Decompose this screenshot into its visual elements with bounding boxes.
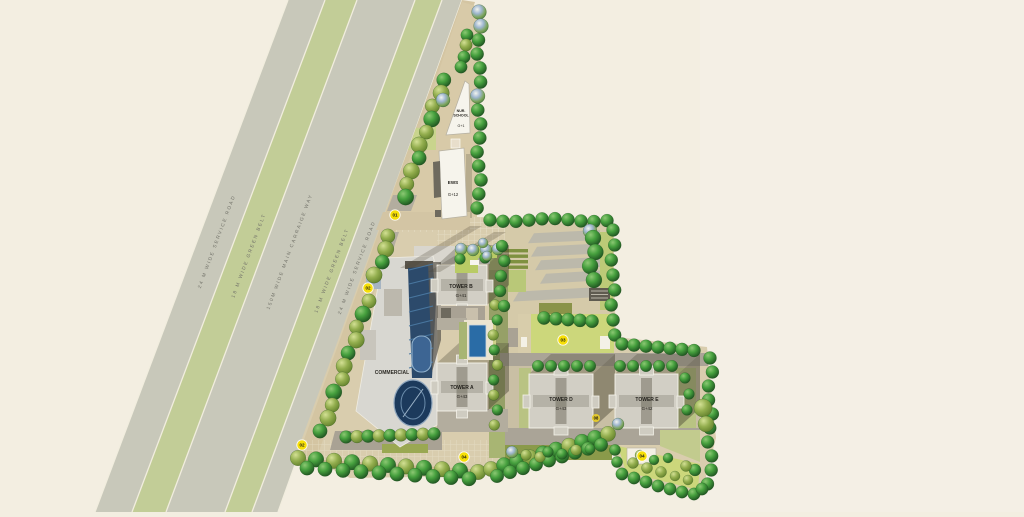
svg-text:01: 01: [392, 213, 398, 218]
svg-text:COMMERCIAL: COMMERCIAL: [375, 370, 409, 376]
svg-text:G+43: G+43: [457, 394, 468, 399]
svg-text:G+41: G+41: [456, 293, 467, 298]
svg-text:SCHOOL: SCHOOL: [453, 114, 469, 118]
svg-text:G+43: G+43: [556, 406, 567, 411]
svg-text:03: 03: [560, 338, 566, 343]
svg-text:G+42: G+42: [642, 406, 653, 411]
svg-text:02: 02: [299, 443, 305, 448]
svg-text:G+12: G+12: [448, 192, 459, 197]
svg-text:04: 04: [639, 454, 645, 459]
svg-text:TOWER D: TOWER D: [549, 397, 573, 403]
svg-text:04: 04: [461, 455, 467, 460]
svg-text:EWS: EWS: [448, 180, 458, 185]
svg-text:08: 08: [594, 416, 599, 421]
svg-text:G+1: G+1: [458, 124, 465, 128]
svg-text:02: 02: [365, 286, 371, 291]
svg-text:TOWER E: TOWER E: [635, 397, 659, 403]
svg-text:NUR.: NUR.: [457, 109, 466, 113]
svg-text:TOWER A: TOWER A: [450, 385, 474, 391]
svg-text:TOWER B: TOWER B: [449, 284, 473, 290]
